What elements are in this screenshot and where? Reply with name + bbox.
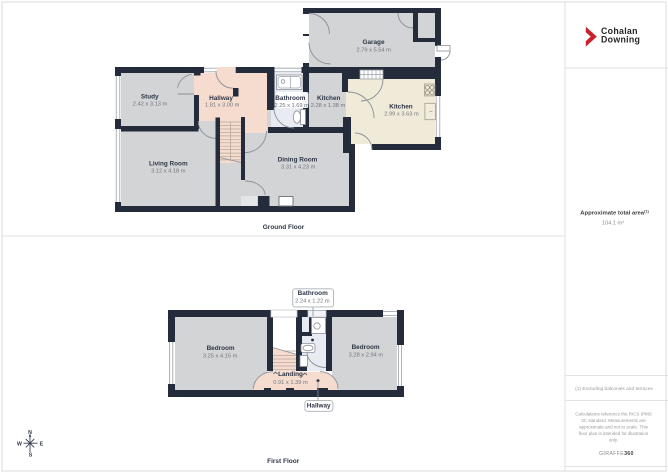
svg-text:2.24 x 1.22 m: 2.24 x 1.22 m — [295, 299, 330, 305]
svg-text:Bedroom: Bedroom — [352, 344, 380, 351]
svg-text:3.12 x 4.18 m: 3.12 x 4.18 m — [151, 168, 186, 174]
svg-text:3.25 x 4.15 m: 3.25 x 4.15 m — [203, 353, 238, 359]
svg-text:Downing: Downing — [601, 35, 640, 45]
svg-text:First Floor: First Floor — [267, 458, 300, 465]
svg-text:W: W — [17, 441, 22, 447]
svg-text:Bedroom: Bedroom — [207, 345, 235, 352]
svg-text:104.1 m²: 104.1 m² — [602, 220, 624, 226]
svg-text:Garage: Garage — [362, 39, 384, 46]
svg-text:Bathroom: Bathroom — [275, 95, 305, 102]
svg-text:2.25 x 1.69 m: 2.25 x 1.69 m — [274, 103, 309, 109]
svg-text:2.99 x 3.63 m: 2.99 x 3.63 m — [384, 112, 419, 118]
svg-text:(1) Excluding balconies and te: (1) Excluding balconies and terraces — [575, 386, 653, 392]
svg-text:Hallway: Hallway — [307, 403, 331, 410]
svg-text:3.31 x 4.23 m: 3.31 x 4.23 m — [281, 164, 316, 170]
svg-text:1.81 x 3.00 m: 1.81 x 3.00 m — [205, 103, 240, 109]
svg-text:2.42 x 3.13 m: 2.42 x 3.13 m — [133, 101, 168, 107]
svg-text:0.91 x 1.39 m: 0.91 x 1.39 m — [273, 380, 308, 386]
svg-text:Landing: Landing — [278, 371, 303, 378]
svg-text:3C standard. Measurements are: 3C standard. Measurements are — [581, 418, 646, 423]
svg-text:only.: only. — [609, 437, 618, 442]
svg-text:Bathroom: Bathroom — [298, 290, 328, 297]
svg-text:Living Room: Living Room — [149, 161, 188, 168]
svg-text:3.28 x 2.94 m: 3.28 x 2.94 m — [349, 352, 384, 358]
svg-text:approximate and not to scale.: approximate and not to scale. This — [579, 425, 648, 430]
svg-text:floor plan is intended for ill: floor plan is intended for illustration — [579, 431, 649, 436]
svg-text:E: E — [40, 441, 44, 447]
svg-text:Ground Floor: Ground Floor — [263, 224, 305, 231]
svg-text:Kitchen: Kitchen — [389, 104, 413, 111]
svg-text:2.28 x 1.38 m: 2.28 x 1.38 m — [311, 103, 346, 109]
svg-text:Dining Room: Dining Room — [278, 157, 318, 164]
svg-text:Approximate total area(1): Approximate total area(1) — [580, 209, 649, 216]
svg-text:Hallway: Hallway — [209, 95, 233, 102]
svg-text:GIRAFFE360: GIRAFFE360 — [599, 451, 634, 457]
svg-text:Study: Study — [141, 93, 159, 100]
svg-text:S: S — [29, 453, 33, 459]
svg-text:Calculations reference the RIC: Calculations reference the RICS IPMS — [575, 412, 652, 417]
svg-text:N: N — [28, 430, 32, 436]
svg-text:Kitchen: Kitchen — [317, 95, 341, 102]
svg-text:2.79 x 5.54 m: 2.79 x 5.54 m — [356, 47, 391, 53]
